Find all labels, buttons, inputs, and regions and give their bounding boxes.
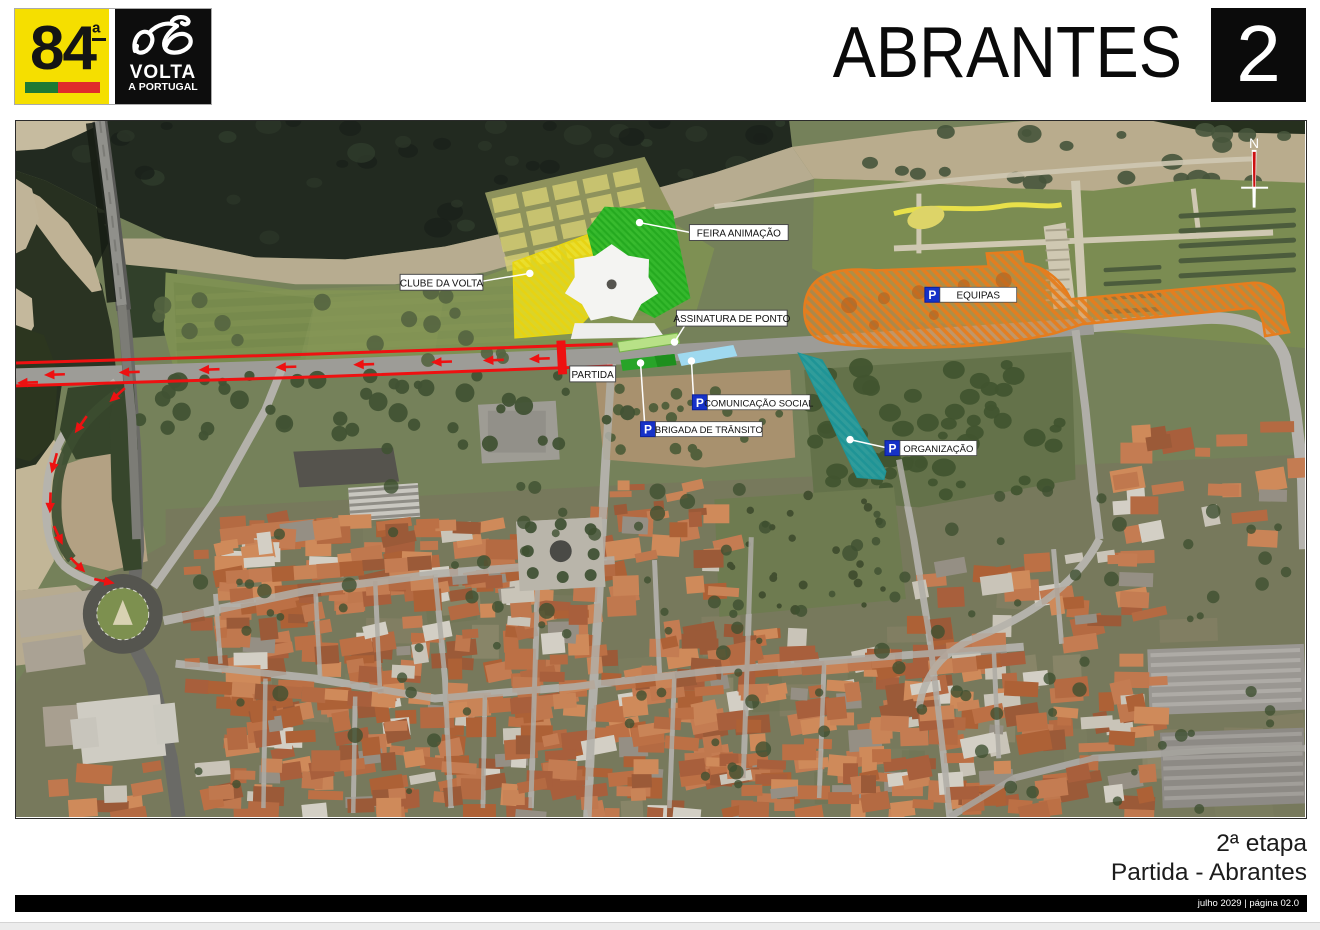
svg-text:EQUIPAS: EQUIPAS [956,291,1000,302]
svg-text:ASSINATURA DE PONTO: ASSINATURA DE PONTO [673,314,790,325]
svg-text:COMUNICAÇÃO SOCIAL: COMUNICAÇÃO SOCIAL [704,398,813,409]
svg-text:P: P [888,442,896,456]
svg-text:P: P [928,288,936,302]
svg-text:P: P [696,396,704,410]
svg-text:CLUBE DA VOLTA: CLUBE DA VOLTA [400,278,484,289]
svg-text:BRIGADA DE TRÂNSITO: BRIGADA DE TRÂNSITO [655,425,763,436]
svg-text:ORGANIZAÇÃO: ORGANIZAÇÃO [903,444,973,455]
svg-text:PARTIDA: PARTIDA [572,370,615,381]
svg-text:N: N [1249,135,1259,151]
svg-text:P: P [644,423,652,437]
svg-text:FEIRA ANIMAÇÃO: FEIRA ANIMAÇÃO [697,229,781,240]
